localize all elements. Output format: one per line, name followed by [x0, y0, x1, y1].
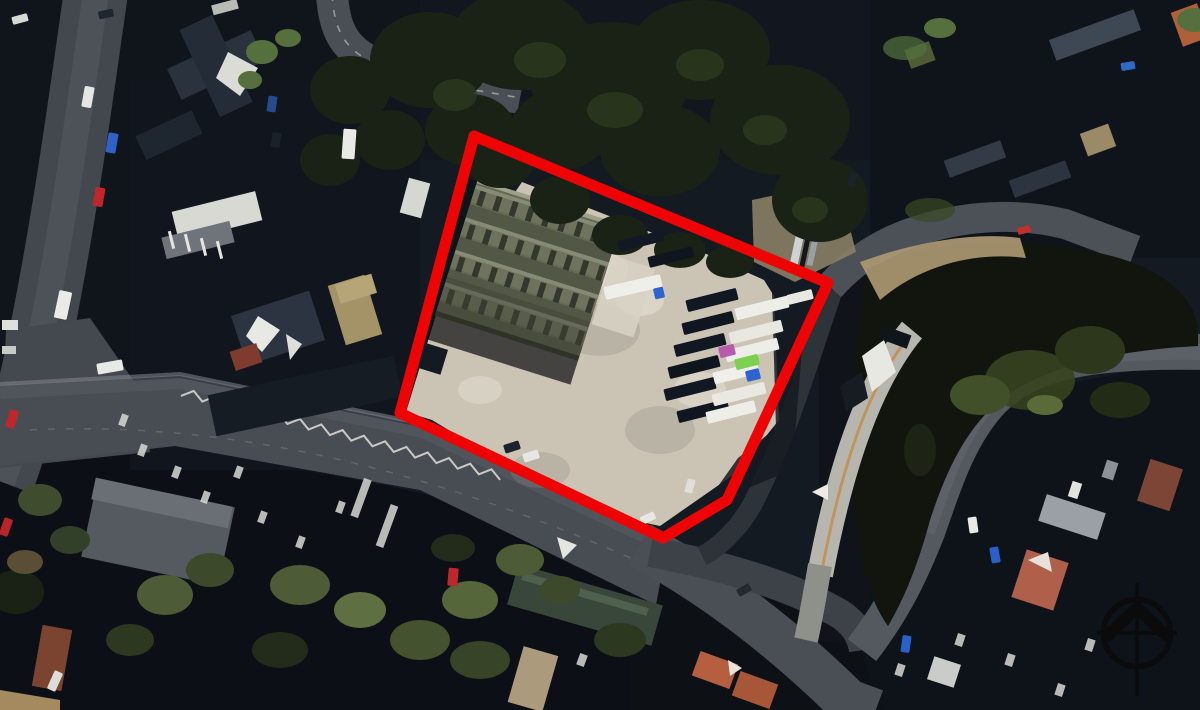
vehicle: [341, 129, 356, 160]
vehicle: [447, 568, 459, 587]
aerial-map-view: [0, 0, 1200, 710]
aerial-photograph: [0, 0, 1200, 710]
